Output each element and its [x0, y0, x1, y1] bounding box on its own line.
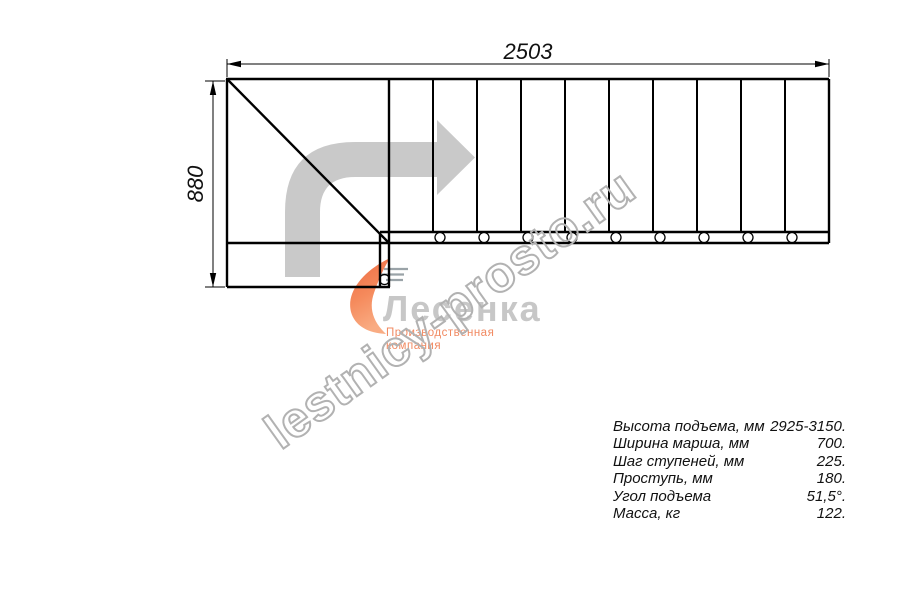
- spec-row: Угол подъема 51,5°.: [613, 488, 846, 505]
- dimension-width-label: 2503: [503, 39, 554, 64]
- dimension-width: 2503: [227, 39, 829, 77]
- dim-arrow-left: [227, 61, 241, 67]
- spec-row: Масса, кг 122.: [613, 505, 846, 522]
- spec-label: Высота подъема, мм: [613, 418, 765, 435]
- tread-circle: [567, 233, 577, 243]
- spec-value: 122.: [817, 505, 846, 522]
- tread-circle: [743, 233, 753, 243]
- dimension-height-label: 880: [183, 165, 208, 202]
- spec-label: Масса, кг: [613, 505, 680, 522]
- spec-label: Угол подъема: [613, 488, 711, 505]
- spec-value: 225.: [817, 453, 846, 470]
- dim-arrow-top: [210, 81, 216, 95]
- dim-arrow-bottom: [210, 273, 216, 287]
- spec-value: 51,5°.: [807, 488, 846, 505]
- tread-circle: [611, 233, 621, 243]
- spec-label: Проступь, мм: [613, 470, 713, 487]
- dimension-height: 880: [183, 81, 225, 287]
- dim-arrow-right: [815, 61, 829, 67]
- screenshot-canvas: Лесенка Производственная компания: [0, 0, 900, 600]
- tread-circle: [479, 233, 489, 243]
- spec-value: 2925-3150.: [770, 418, 846, 435]
- stringer-holes: [380, 233, 798, 285]
- tread-circle: [699, 233, 709, 243]
- tread-circle: [787, 233, 797, 243]
- spec-value: 180.: [817, 470, 846, 487]
- spec-row: Проступь, мм 180.: [613, 470, 846, 487]
- spec-value: 700.: [817, 435, 846, 452]
- tread-circle: [523, 233, 533, 243]
- tread-circle: [655, 233, 665, 243]
- spec-row: Шаг ступеней, мм 225.: [613, 453, 846, 470]
- spec-row: Высота подъема, мм 2925-3150.: [613, 418, 846, 435]
- step-lines: [433, 79, 785, 232]
- specs-panel: Высота подъема, мм 2925-3150. Ширина мар…: [613, 418, 846, 522]
- spec-label: Ширина марша, мм: [613, 435, 749, 452]
- spec-row: Ширина марша, мм 700.: [613, 435, 846, 452]
- tread-circle: [435, 233, 445, 243]
- spec-label: Шаг ступеней, мм: [613, 453, 744, 470]
